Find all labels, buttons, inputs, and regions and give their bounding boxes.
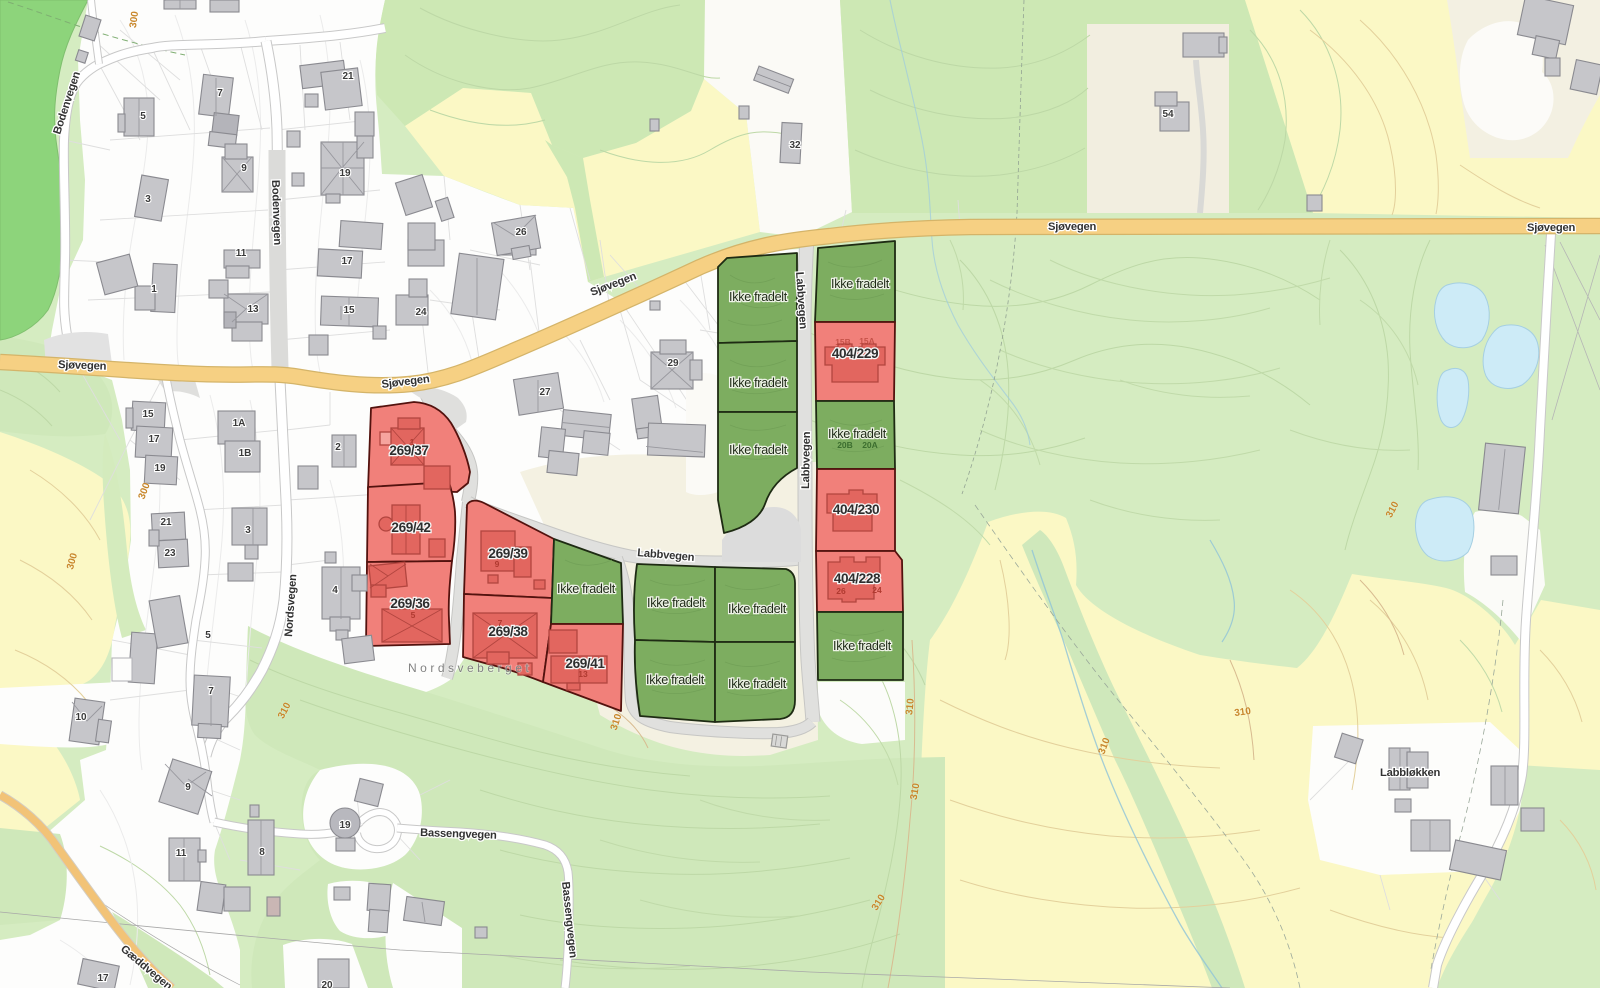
svg-text:17: 17 [148, 434, 160, 445]
svg-text:9: 9 [185, 782, 191, 793]
svg-text:24: 24 [872, 585, 882, 595]
svg-text:26: 26 [836, 586, 846, 596]
svg-text:26: 26 [515, 227, 527, 238]
svg-text:Ikke fradelt: Ikke fradelt [728, 677, 787, 691]
svg-text:7: 7 [217, 88, 223, 99]
svg-text:Ikke fradelt: Ikke fradelt [647, 596, 706, 610]
svg-text:2: 2 [335, 442, 341, 453]
svg-text:4: 4 [332, 585, 338, 596]
svg-text:20: 20 [321, 980, 333, 988]
svg-text:11: 11 [236, 248, 247, 259]
svg-text:Ikke fradelt: Ikke fradelt [557, 582, 616, 596]
svg-text:Ikke fradelt: Ikke fradelt [729, 443, 788, 457]
svg-text:19: 19 [154, 463, 166, 474]
svg-text:27: 27 [539, 387, 551, 398]
svg-text:5: 5 [411, 610, 416, 620]
svg-text:17: 17 [341, 256, 353, 267]
svg-text:269/42: 269/42 [391, 520, 431, 535]
svg-text:24: 24 [415, 307, 427, 318]
svg-text:1A: 1A [233, 418, 246, 429]
svg-text:3: 3 [145, 194, 151, 205]
svg-text:Labbløkken: Labbløkken [1380, 767, 1441, 779]
svg-text:Sjøvegen: Sjøvegen [1048, 221, 1097, 233]
svg-text:19: 19 [339, 168, 351, 179]
svg-text:15: 15 [142, 409, 154, 420]
svg-text:404/228: 404/228 [834, 571, 881, 586]
svg-text:7: 7 [498, 618, 503, 628]
svg-text:Ikke fradelt: Ikke fradelt [728, 602, 787, 616]
svg-text:Ikke fradelt: Ikke fradelt [833, 639, 892, 653]
svg-text:5: 5 [140, 111, 146, 122]
svg-text:Ikke fradelt: Ikke fradelt [729, 376, 788, 390]
svg-text:1: 1 [151, 284, 157, 295]
svg-text:10: 10 [75, 712, 87, 723]
svg-text:20B: 20B [837, 440, 853, 450]
svg-text:11: 11 [176, 848, 187, 859]
svg-text:23: 23 [164, 548, 176, 559]
svg-text:29: 29 [667, 358, 679, 369]
svg-text:Nordsveberget: Nordsveberget [408, 661, 532, 675]
svg-text:7: 7 [208, 686, 214, 697]
svg-text:404/230: 404/230 [833, 502, 879, 517]
svg-text:Sjøvegen: Sjøvegen [58, 359, 107, 373]
svg-text:15: 15 [343, 305, 355, 316]
svg-text:310: 310 [904, 697, 917, 715]
svg-text:32: 32 [789, 140, 801, 151]
svg-text:Ikke fradelt: Ikke fradelt [646, 673, 705, 687]
svg-text:13: 13 [247, 304, 259, 315]
svg-text:9: 9 [495, 559, 500, 569]
svg-text:13: 13 [578, 669, 588, 679]
svg-text:404/229: 404/229 [832, 346, 879, 361]
svg-text:Sjøvegen: Sjøvegen [1527, 222, 1576, 234]
svg-text:20A: 20A [862, 440, 878, 450]
svg-text:Bodenvegen: Bodenvegen [269, 180, 283, 246]
svg-text:1B: 1B [239, 448, 252, 459]
svg-text:1: 1 [410, 437, 415, 447]
svg-text:5: 5 [205, 630, 211, 641]
svg-text:Ikke fradelt: Ikke fradelt [729, 290, 788, 304]
svg-text:Ikke fradelt: Ikke fradelt [828, 427, 887, 441]
svg-text:269/36: 269/36 [390, 596, 430, 611]
svg-text:9: 9 [241, 163, 247, 174]
svg-text:8: 8 [259, 847, 265, 858]
svg-text:269/38: 269/38 [488, 624, 528, 639]
svg-text:15A: 15A [859, 336, 875, 346]
svg-text:15B: 15B [835, 337, 851, 347]
svg-text:54: 54 [1162, 109, 1174, 120]
svg-text:17: 17 [97, 973, 109, 984]
svg-text:Labbvegen: Labbvegen [800, 431, 813, 489]
svg-text:19: 19 [339, 820, 351, 831]
svg-text:21: 21 [160, 517, 172, 528]
svg-text:Ikke fradelt: Ikke fradelt [831, 277, 890, 291]
svg-text:21: 21 [342, 71, 354, 82]
svg-text:3: 3 [245, 525, 251, 536]
